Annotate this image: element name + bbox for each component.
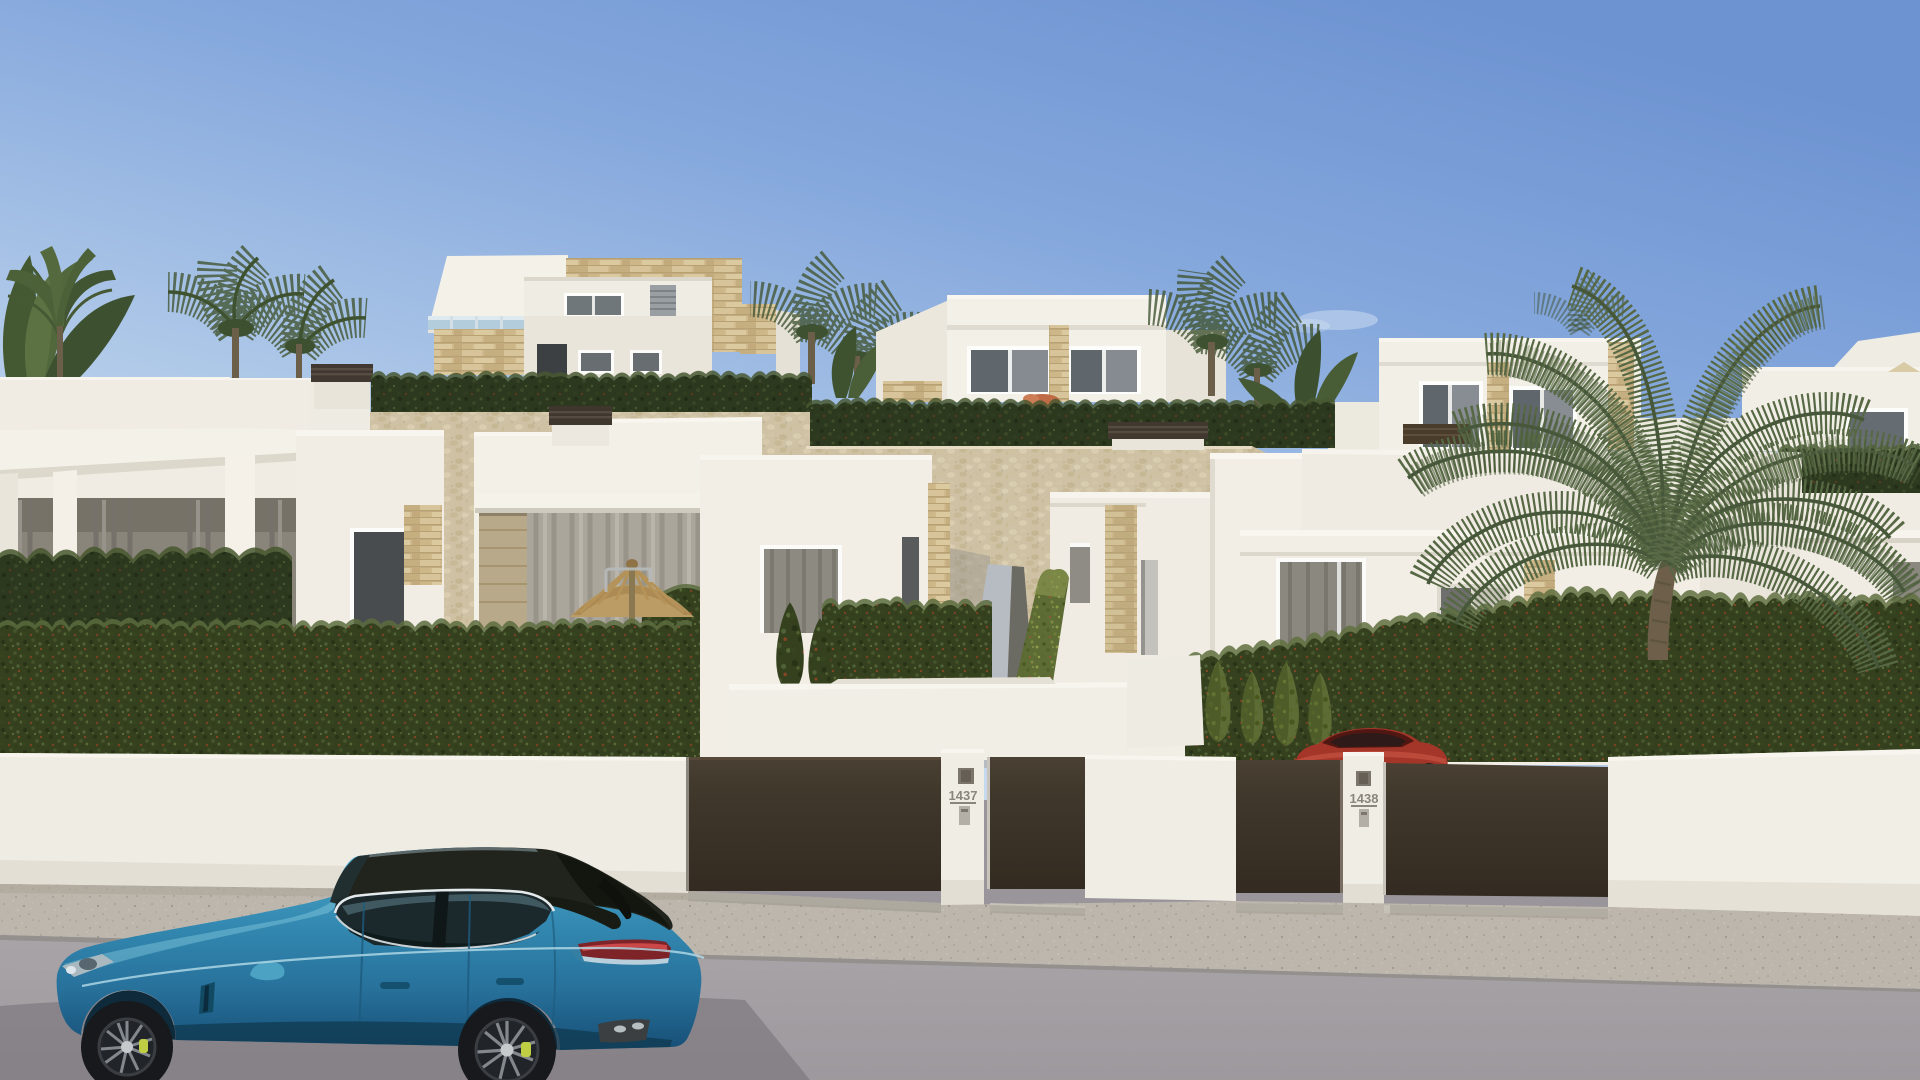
svg-text:1438: 1438 — [1350, 791, 1379, 806]
svg-text:1437: 1437 — [949, 788, 978, 803]
